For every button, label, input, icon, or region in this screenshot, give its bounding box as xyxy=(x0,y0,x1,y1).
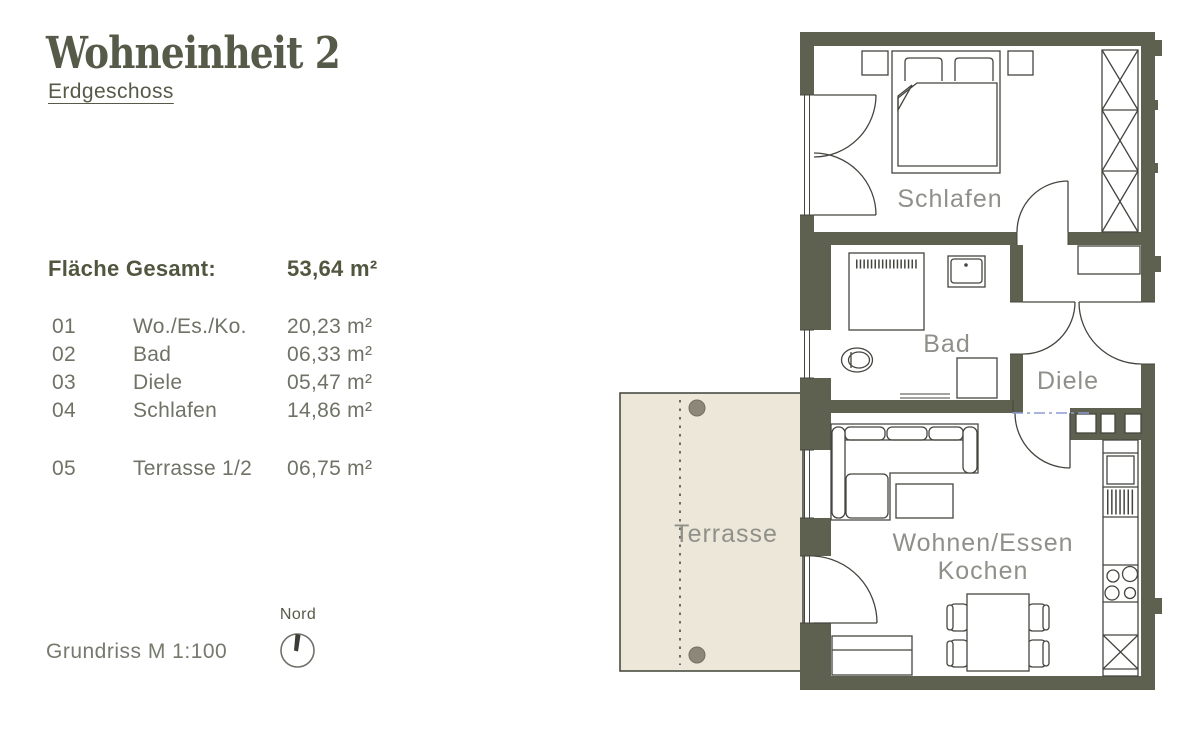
nightstand xyxy=(862,51,888,75)
room-label-wohnen-1: Wohnen/Essen xyxy=(892,529,1073,557)
row-num: 03 xyxy=(52,371,76,395)
scale-label: Grundriss M 1:100 xyxy=(46,640,227,664)
washing-machine xyxy=(957,358,997,398)
room-wohnen: Wohnen/Essen Kochen xyxy=(831,424,1138,676)
kitchen-sink xyxy=(1107,456,1134,484)
dining-table xyxy=(967,594,1029,671)
row-area: 06,75 m² xyxy=(287,457,372,481)
page-title: Wohneinheit 2 xyxy=(46,28,340,79)
row-num: 05 xyxy=(52,457,76,481)
room-label-terrasse: Terrasse xyxy=(674,520,778,548)
shower xyxy=(849,253,924,330)
floor-plan: Schlafen Bad xyxy=(600,0,1200,731)
page: Wohneinheit 2 Erdgeschoss Fläche Gesamt:… xyxy=(0,0,1200,731)
bed xyxy=(892,51,1000,173)
room-label-diele: Diele xyxy=(1037,367,1099,395)
terrace-door xyxy=(814,556,877,623)
niche xyxy=(1078,246,1140,274)
cooktop xyxy=(1105,567,1138,601)
row-num: 01 xyxy=(52,315,76,339)
washbasin xyxy=(948,256,985,287)
north-compass-icon xyxy=(277,630,318,671)
row-num: 04 xyxy=(52,399,76,423)
toilet xyxy=(842,348,873,372)
row-area: 06,33 m² xyxy=(287,343,372,367)
schlafen-door xyxy=(1017,181,1068,232)
row-name: Schlafen xyxy=(133,399,217,423)
area-total-value: 53,64 m² xyxy=(287,256,377,282)
page-subtitle: Erdgeschoss xyxy=(48,80,174,104)
sofa xyxy=(831,424,978,520)
sideboard xyxy=(832,636,912,675)
row-name: Wo./Es./Ko. xyxy=(133,315,247,339)
coffee-table xyxy=(896,484,953,518)
room-label-schlafen: Schlafen xyxy=(897,185,1002,213)
living-door xyxy=(1015,413,1070,468)
entrance-door xyxy=(1079,302,1141,364)
terrace-post xyxy=(689,400,705,416)
row-area: 20,23 m² xyxy=(287,315,372,339)
row-num: 02 xyxy=(52,343,76,367)
room-label-bad: Bad xyxy=(923,330,970,358)
room-bad: Bad xyxy=(842,253,998,398)
north-label: Nord xyxy=(269,606,327,624)
row-name: Diele xyxy=(133,371,182,395)
shaft-boxes xyxy=(1076,414,1141,433)
bad-door xyxy=(1023,302,1075,354)
room-schlafen: Schlafen xyxy=(862,50,1138,232)
room-label-wohnen-2: Kochen xyxy=(938,557,1029,585)
wardrobe xyxy=(1102,50,1138,232)
dining-set xyxy=(947,594,1049,671)
area-total-label: Fläche Gesamt: xyxy=(48,256,216,282)
walls xyxy=(800,32,1162,690)
room-diele: Diele xyxy=(1012,246,1140,413)
row-name: Terrasse 1/2 xyxy=(133,457,252,481)
french-door xyxy=(814,95,876,215)
row-name: Bad xyxy=(133,343,171,367)
nightstand xyxy=(1008,51,1033,75)
kitchen-counter xyxy=(1103,440,1138,676)
row-area: 05,47 m² xyxy=(287,371,372,395)
terrace-post xyxy=(689,647,705,663)
row-area: 14,86 m² xyxy=(287,399,372,423)
